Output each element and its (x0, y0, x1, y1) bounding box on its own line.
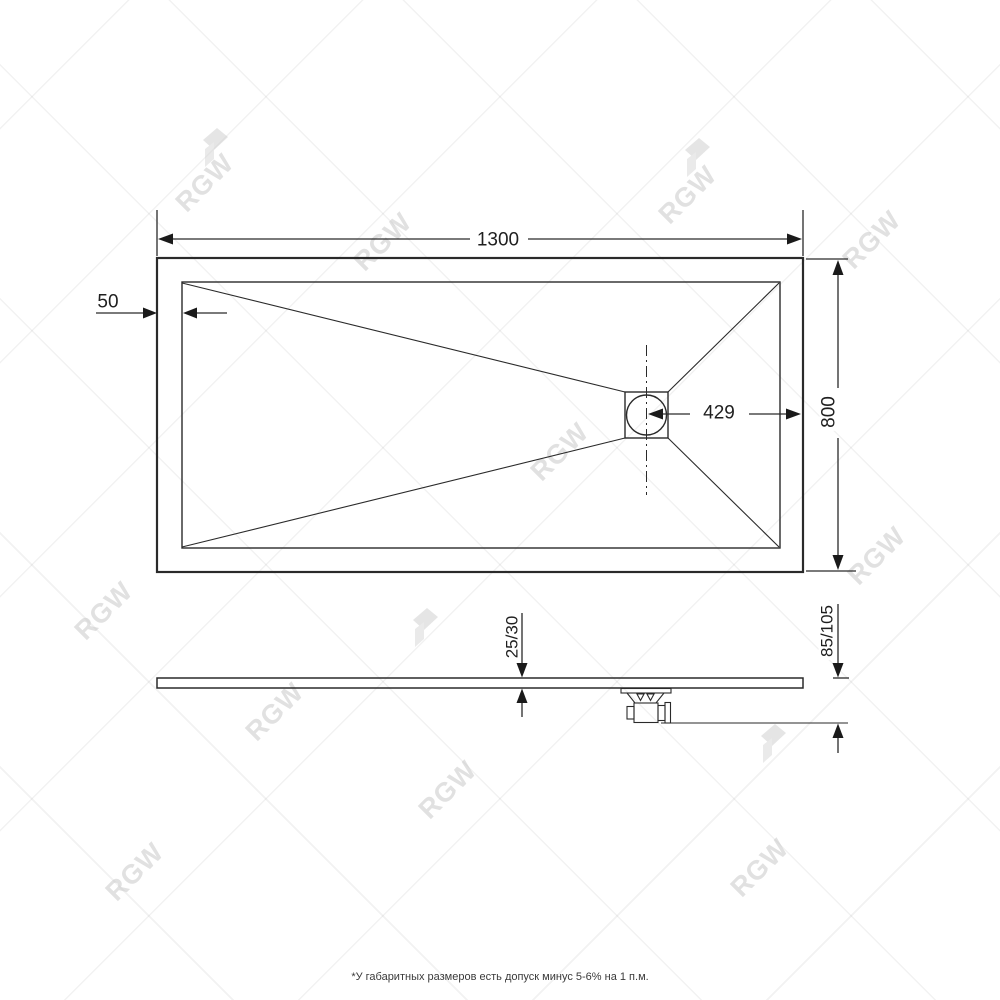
arrow-left-icon (183, 308, 197, 319)
drain-fitting (621, 689, 671, 724)
arrow-up-icon (833, 724, 844, 739)
arrow-down-icon (833, 663, 844, 678)
arrow-down-icon (833, 555, 844, 570)
dimension-label-drain-offset: 429 (700, 404, 738, 423)
arrow-up-icon (833, 260, 844, 275)
tray-inner-edge (182, 282, 780, 548)
arrow-right-icon (143, 308, 157, 319)
dimension-label-offset: 50 (94, 293, 121, 312)
arrow-down-icon (517, 663, 528, 678)
arrow-left-icon (648, 409, 663, 420)
tray-profile (157, 678, 803, 688)
tolerance-footnote: *У габаритных размеров есть допуск минус… (351, 971, 648, 983)
arrow-right-icon (787, 234, 802, 245)
technical-drawing-canvas: RGW RGW RGW RGW RGW RGW RGW RGW RGW RGW … (0, 0, 1000, 1000)
dimension-label-width: 800 (820, 393, 839, 431)
arrow-up-icon (517, 689, 528, 704)
side-view-section (157, 678, 848, 723)
dimension-label-overall-height: 85/105 (819, 602, 836, 660)
dimension-label-length: 1300 (474, 231, 522, 250)
arrow-left-icon (158, 234, 173, 245)
dimension-label-thickness: 25/30 (504, 613, 521, 662)
slope-lines (182, 283, 779, 547)
drawing-linework (0, 0, 1000, 1000)
arrow-right-icon (786, 409, 801, 420)
